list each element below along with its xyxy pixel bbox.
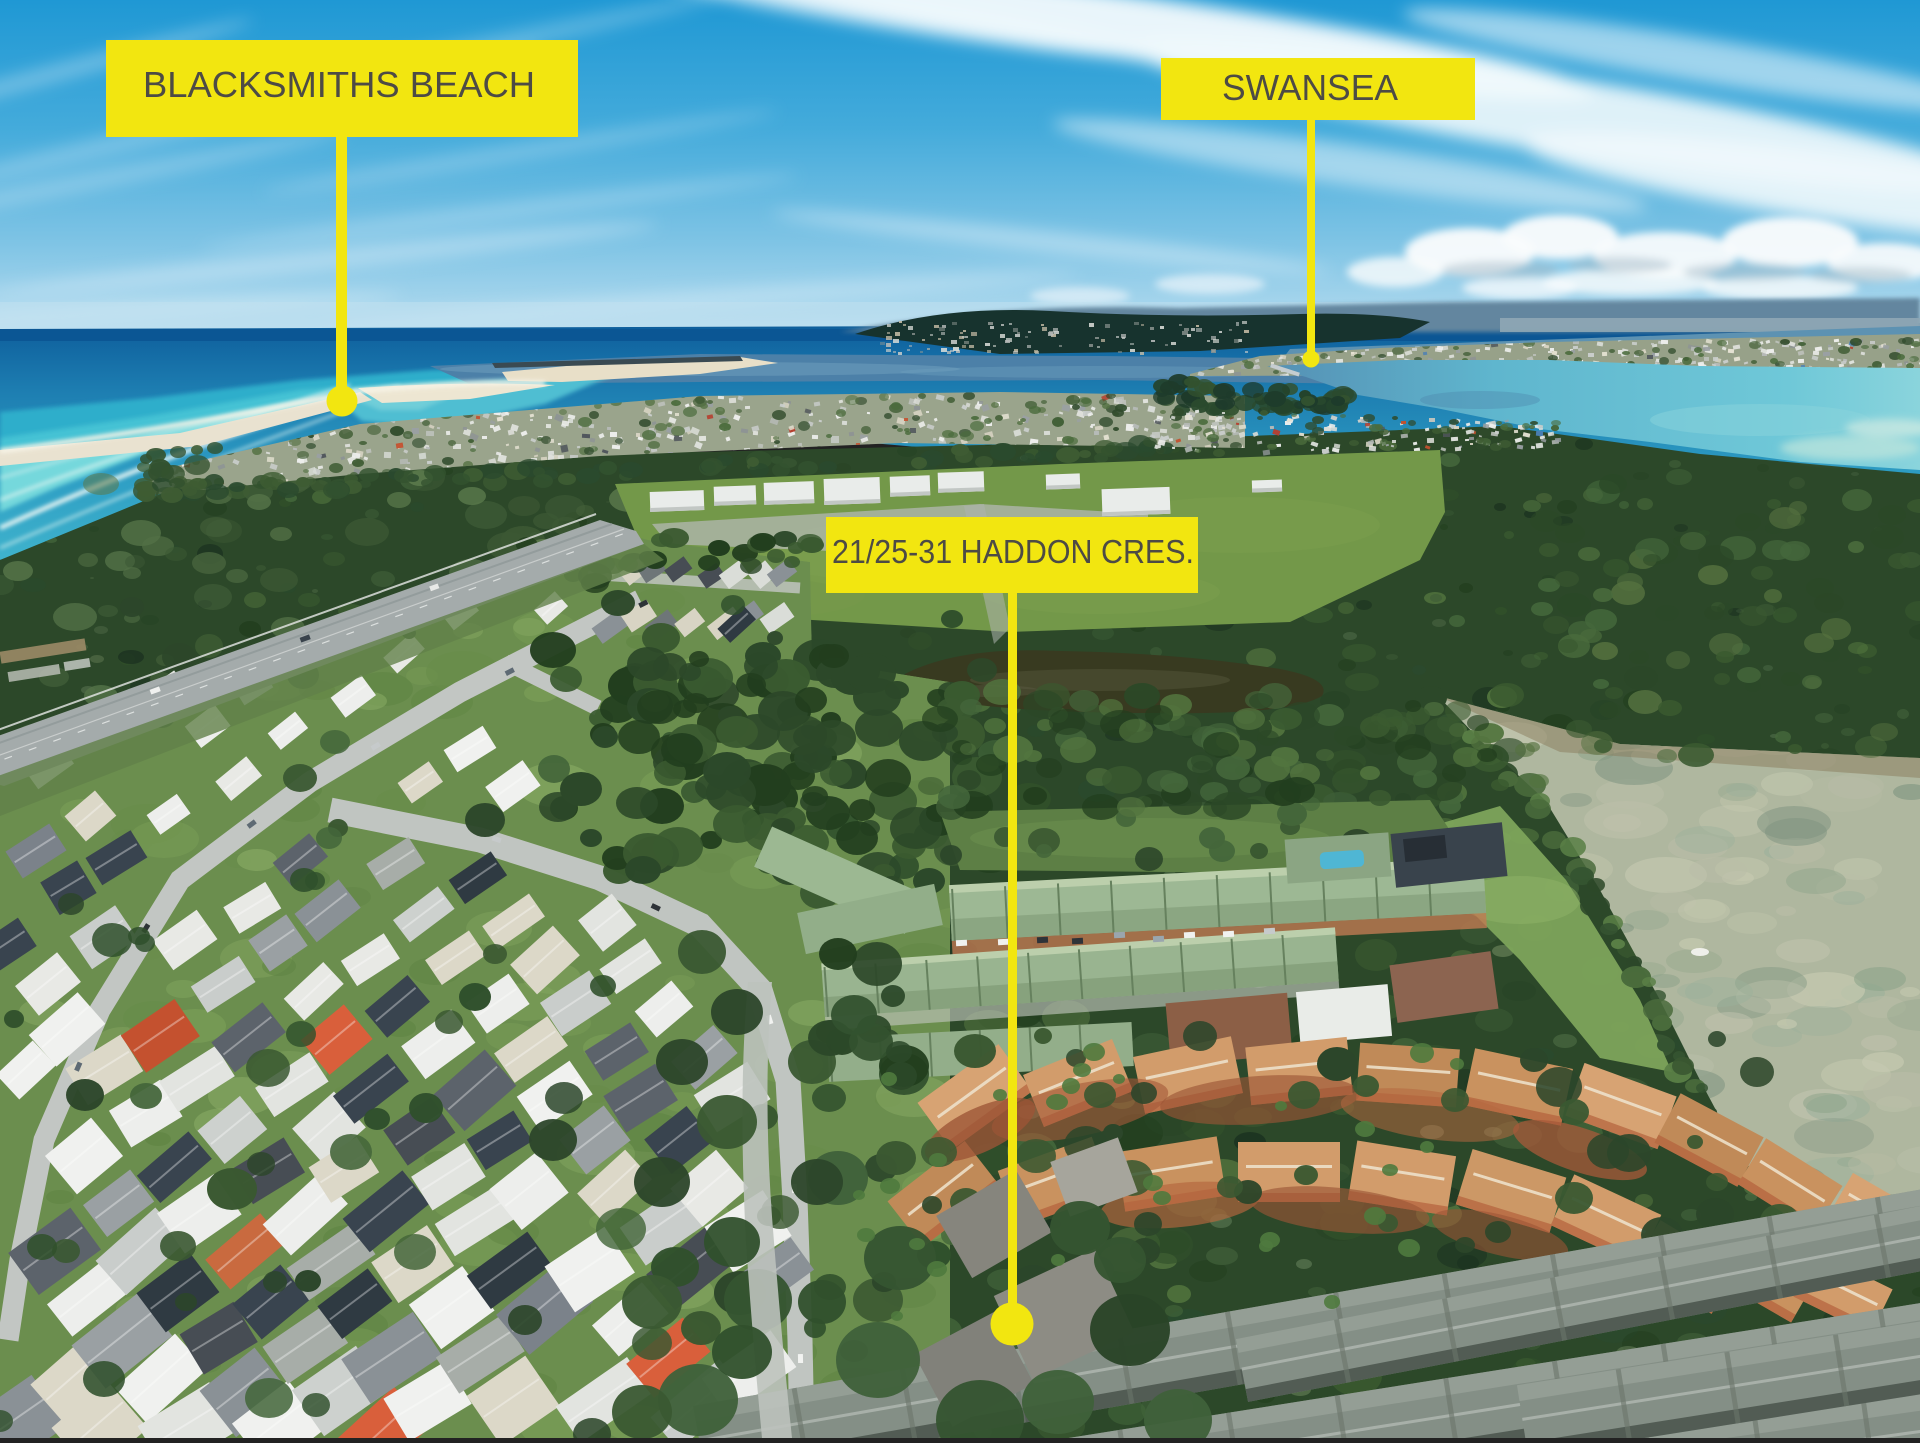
svg-text:21/25-31 HADDON CRES.: 21/25-31 HADDON CRES. (832, 533, 1194, 570)
svg-text:BLACKSMITHS BEACH: BLACKSMITHS BEACH (143, 64, 535, 105)
svg-text:SWANSEA: SWANSEA (1222, 67, 1398, 108)
